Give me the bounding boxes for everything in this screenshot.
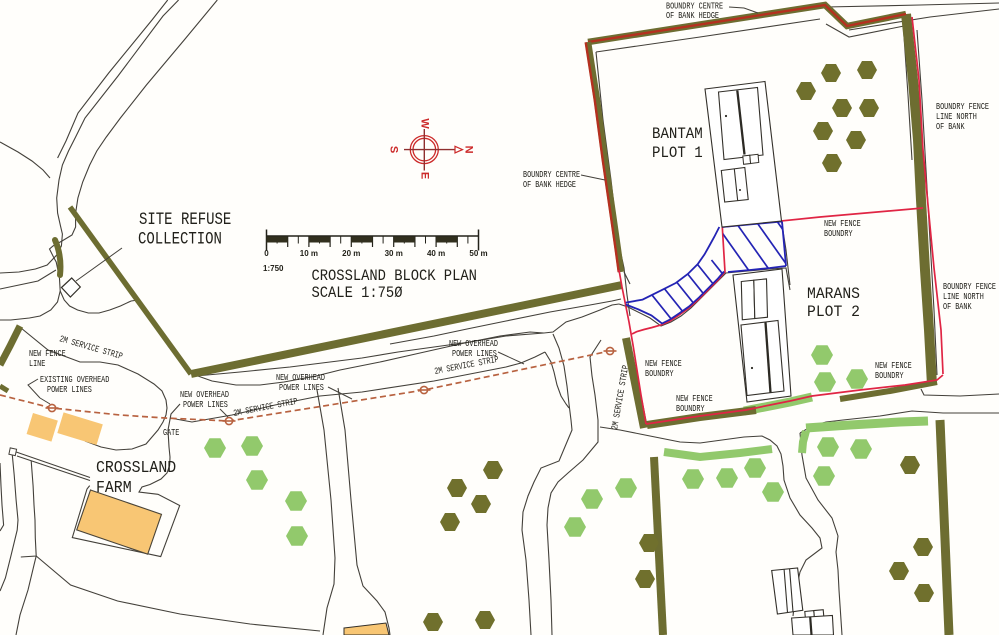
- svg-text:OF BANK HEDGE: OF BANK HEDGE: [523, 180, 576, 190]
- svg-text:20 m: 20 m: [342, 249, 360, 258]
- svg-text:NEW FENCE: NEW FENCE: [824, 219, 861, 229]
- svg-text:SITE REFUSE: SITE REFUSE: [139, 210, 231, 230]
- svg-text:COLLECTION: COLLECTION: [138, 229, 222, 249]
- svg-text:NEW FENCE: NEW FENCE: [875, 361, 912, 371]
- svg-text:N: N: [463, 146, 475, 154]
- svg-text:FARM: FARM: [96, 478, 132, 497]
- svg-text:1:750: 1:750: [263, 264, 284, 273]
- svg-text:OF BANK: OF BANK: [936, 122, 965, 132]
- svg-text:SCALE 1:75Ø: SCALE 1:75Ø: [312, 285, 403, 302]
- svg-text:NEW FENCE: NEW FENCE: [645, 359, 682, 369]
- svg-text:50 m: 50 m: [469, 249, 487, 258]
- svg-text:LINE NORTH: LINE NORTH: [943, 292, 984, 302]
- svg-text:0: 0: [264, 249, 269, 258]
- svg-text:OF BANK HEDGE: OF BANK HEDGE: [666, 11, 719, 21]
- svg-text:BANTAM: BANTAM: [652, 126, 703, 143]
- svg-text:EXISTING OVERHEAD: EXISTING OVERHEAD: [40, 375, 109, 385]
- svg-text:W: W: [418, 118, 430, 129]
- svg-text:LINE: LINE: [29, 359, 45, 369]
- svg-text:NEW FENCE: NEW FENCE: [676, 394, 713, 404]
- svg-text:NEW OVERHEAD: NEW OVERHEAD: [449, 339, 498, 349]
- svg-text:NEW OVERHEAD: NEW OVERHEAD: [276, 373, 325, 383]
- svg-text:BOUNDRY: BOUNDRY: [824, 229, 853, 239]
- svg-text:10 m: 10 m: [300, 249, 318, 258]
- svg-text:CROSSLAND: CROSSLAND: [96, 458, 176, 477]
- svg-text:S: S: [388, 146, 400, 153]
- svg-text:GATE: GATE: [163, 428, 179, 438]
- svg-text:NEW FENCE: NEW FENCE: [29, 349, 66, 359]
- svg-text:40 m: 40 m: [427, 249, 445, 258]
- svg-text:E: E: [418, 172, 430, 179]
- svg-text:PLOT 2: PLOT 2: [807, 303, 860, 321]
- svg-text:MARANS: MARANS: [807, 285, 860, 303]
- svg-text:CROSSLAND BLOCK PLAN: CROSSLAND BLOCK PLAN: [312, 268, 477, 285]
- svg-text:BOUNDRY: BOUNDRY: [676, 404, 705, 414]
- svg-text:BOUNDRY FENCE: BOUNDRY FENCE: [943, 282, 996, 292]
- svg-text:POWER LINES: POWER LINES: [279, 383, 324, 393]
- svg-text:LINE NORTH: LINE NORTH: [936, 112, 977, 122]
- svg-text:BOUNDRY FENCE: BOUNDRY FENCE: [936, 102, 989, 112]
- svg-text:OF BANK: OF BANK: [943, 302, 972, 312]
- svg-text:POWER LINES: POWER LINES: [183, 400, 228, 410]
- svg-text:BOUNDRY: BOUNDRY: [875, 371, 904, 381]
- svg-text:PLOT 1: PLOT 1: [652, 145, 703, 162]
- svg-text:BOUNDRY CENTRE: BOUNDRY CENTRE: [523, 170, 580, 180]
- svg-text:30 m: 30 m: [385, 249, 403, 258]
- svg-text:BOUNDRY: BOUNDRY: [645, 369, 674, 379]
- svg-text:NEW OVERHEAD: NEW OVERHEAD: [180, 390, 229, 400]
- svg-text:POWER LINES: POWER LINES: [47, 385, 92, 395]
